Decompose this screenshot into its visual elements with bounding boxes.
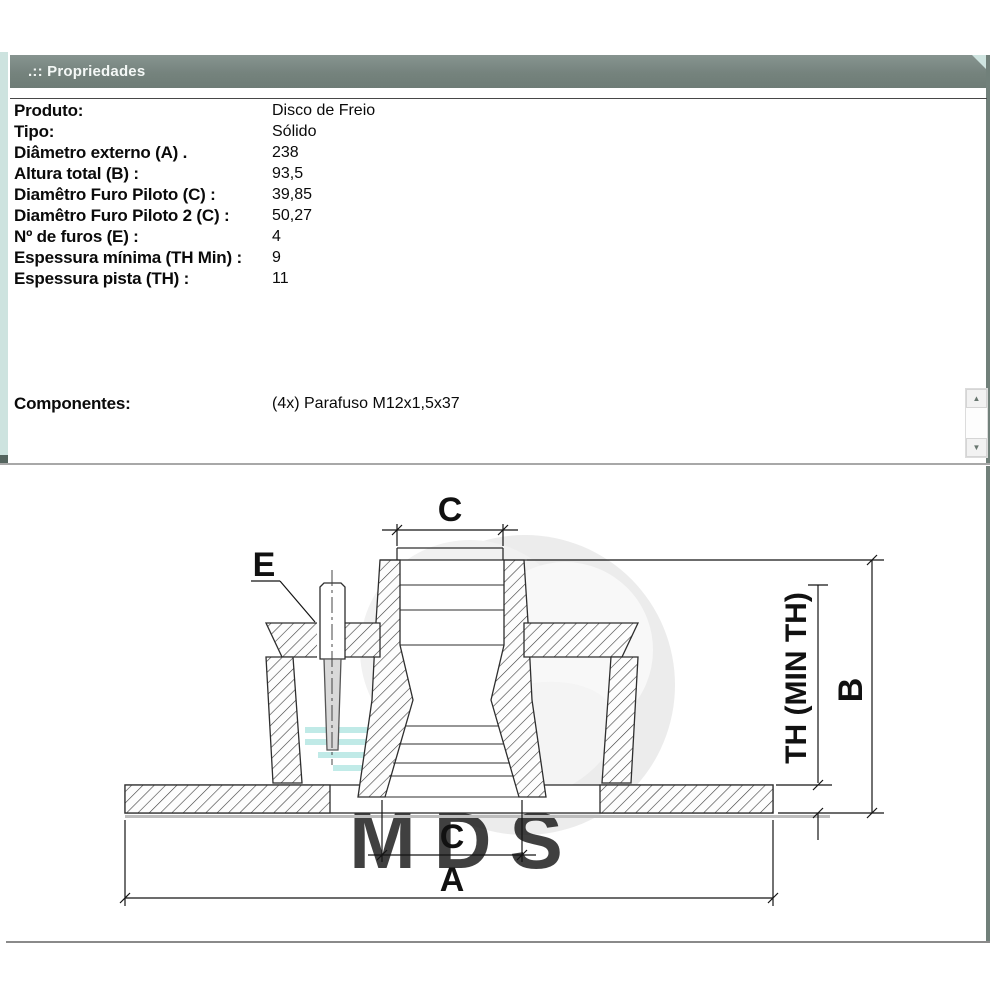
- property-label: Diâmetro externo (A) .: [10, 142, 272, 163]
- window-bottom-border: [6, 941, 990, 943]
- dim-label-bolt: E: [253, 546, 276, 584]
- dim-label-pilot-top: C: [438, 491, 463, 529]
- property-value: 93,5: [272, 163, 303, 184]
- left-accent-strip: [0, 52, 10, 464]
- dim-label-outer: A: [440, 861, 465, 899]
- scroll-track[interactable]: [966, 408, 987, 438]
- dim-label-height: B: [832, 678, 870, 703]
- property-label: Tipo:: [10, 121, 272, 142]
- components-value: (4x) Parafuso M12x1,5x37: [272, 393, 460, 414]
- scroll-down-icon: ▼: [973, 443, 981, 452]
- property-value: 9: [272, 247, 281, 268]
- property-value: 4: [272, 226, 281, 247]
- property-value: Disco de Freio: [272, 100, 375, 121]
- property-row: Produto: Disco de Freio: [10, 100, 960, 121]
- property-row: Diamêtro Furo Piloto (C) : 39,85: [10, 184, 960, 205]
- property-label: Produto:: [10, 100, 272, 121]
- property-value: Sólido: [272, 121, 316, 142]
- properties-top-rule: [10, 98, 987, 99]
- property-value: 50,27: [272, 205, 312, 226]
- property-label: Nº de furos (E) :: [10, 226, 272, 247]
- window-title: .:: Propriedades: [10, 63, 145, 80]
- property-value: 11: [272, 268, 289, 289]
- property-label: Altura total (B) :: [10, 163, 272, 184]
- property-label: Diamêtro Furo Piloto 2 (C) :: [10, 205, 272, 226]
- property-label: Espessura mínima (TH Min) :: [10, 247, 272, 268]
- scroll-up-button[interactable]: ▲: [966, 389, 987, 408]
- brake-disc-diagram: MDS: [0, 465, 1000, 942]
- property-row: Diâmetro externo (A) . 238: [10, 142, 960, 163]
- disc-cross-section: [125, 548, 830, 817]
- property-value: 39,85: [272, 184, 312, 205]
- property-row: Tipo: Sólido: [10, 121, 960, 142]
- properties-window: .:: Propriedades Produto: Disco de Freio…: [0, 0, 1000, 1000]
- dim-label-pilot-bottom: C: [440, 818, 465, 856]
- property-row: Espessura mínima (TH Min) : 9: [10, 247, 960, 268]
- property-value: 238: [272, 142, 299, 163]
- components-row: Componentes: (4x) Parafuso M12x1,5x37: [10, 393, 960, 414]
- property-row: Altura total (B) : 93,5: [10, 163, 960, 184]
- scroll-down-button[interactable]: ▼: [966, 438, 987, 457]
- window-titlebar: .:: Propriedades: [10, 55, 987, 88]
- property-row: Nº de furos (E) : 4: [10, 226, 960, 247]
- property-label: Espessura pista (TH) :: [10, 268, 272, 289]
- property-row: Diamêtro Furo Piloto 2 (C) : 50,27: [10, 205, 960, 226]
- dim-label-thickness: TH (MIN TH): [780, 592, 813, 764]
- components-label: Componentes:: [10, 393, 272, 414]
- property-row: Espessura pista (TH) : 11: [10, 268, 960, 289]
- property-label: Diamêtro Furo Piloto (C) :: [10, 184, 272, 205]
- components-scrollbar[interactable]: ▲ ▼: [965, 388, 988, 458]
- scroll-up-icon: ▲: [973, 394, 981, 403]
- properties-table: Produto: Disco de Freio Tipo: Sólido Diâ…: [10, 100, 960, 289]
